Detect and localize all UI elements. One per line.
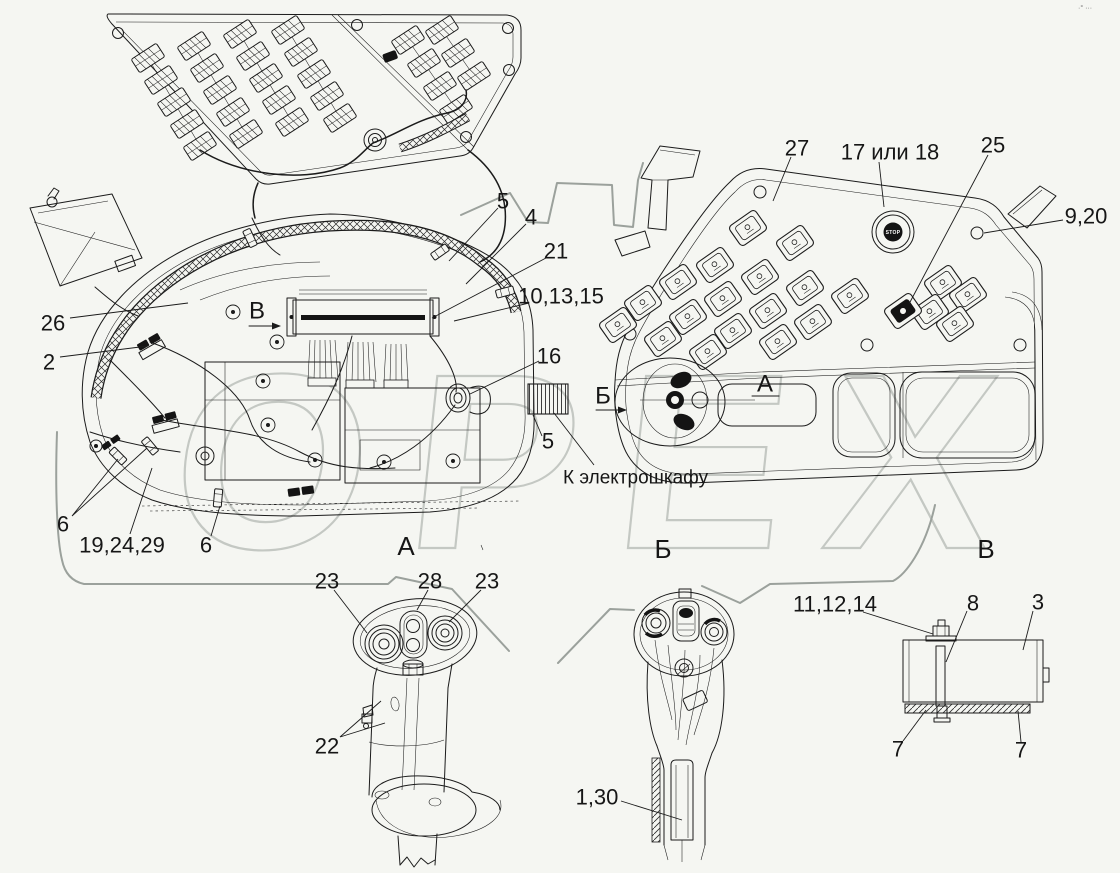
callout-27: 27: [785, 136, 809, 161]
connector-block: [262, 85, 296, 115]
cable-clamp: [430, 244, 449, 261]
joystick-base-flange: [372, 776, 501, 838]
callout-7-right: 7: [1015, 738, 1027, 763]
callout-23-left: 23: [315, 569, 339, 594]
hinge-bracket: [615, 146, 700, 256]
callout-9-20: 9,20: [1065, 204, 1108, 229]
connector-block: [190, 53, 224, 83]
mounting-strip: [905, 704, 1030, 713]
harness-plug-center: [673, 601, 699, 641]
stop-button-label: STOP: [886, 230, 901, 236]
joystick-button-right: [428, 616, 462, 650]
joystick-detail: [349, 593, 501, 867]
connector-block: [177, 31, 211, 61]
corner-flange: [1008, 186, 1056, 228]
connector-block: [441, 38, 475, 68]
annotation-to-cabinet: К электрошкафу: [563, 468, 709, 489]
harness-detail: [634, 589, 734, 862]
cable-clamp: [213, 489, 223, 508]
callout-19-24-29: 19,24,29: [79, 533, 165, 558]
callout-4: 4: [525, 205, 537, 230]
callout-25: 25: [981, 133, 1005, 158]
rocker-switch: [740, 258, 780, 296]
harness-connector-1-30: [671, 760, 693, 840]
connector-block: [216, 97, 250, 127]
callout-21: 21: [544, 239, 568, 264]
small-plug: [382, 50, 398, 63]
callout-11-12-14: 11,12,14: [793, 592, 877, 617]
connector-block: [271, 15, 305, 45]
harness-ring-right: [701, 619, 727, 645]
connector-block: [249, 63, 283, 93]
screw-symbol: [226, 305, 240, 319]
corrugated-cable-stub: [528, 384, 568, 414]
direction-b-letter: Б: [595, 383, 611, 410]
callout-1-30: 1,30: [576, 785, 619, 810]
wiring-diagram: ОРЕХ ·° ···: [0, 0, 1120, 873]
corner-mark: ·° ···: [1078, 4, 1092, 12]
rocker-switch: [728, 209, 768, 247]
view-caption-b: Б: [654, 534, 671, 564]
callout-16: 16: [537, 344, 561, 369]
callout-2: 2: [43, 350, 55, 375]
cable-clamp: [109, 447, 127, 465]
callout-17-or-18: 17 или 18: [841, 140, 940, 165]
connector-block: [323, 103, 357, 133]
callout-8: 8: [967, 591, 979, 616]
connector-block: [157, 87, 191, 117]
callout-22: 22: [315, 734, 339, 759]
callout-10-13-15: 10,13,15: [518, 284, 604, 309]
callout-6-left: 6: [57, 512, 69, 537]
connector-block: [407, 48, 441, 78]
top-panel-view: [107, 14, 521, 218]
view-caption-v: В: [977, 534, 994, 564]
rocker-switch: [695, 246, 735, 284]
technical-drawing-page: ОРЕХ ·° ···: [0, 0, 1120, 873]
connector-block: [310, 81, 344, 111]
relay-box-26: [30, 188, 142, 316]
connector-block: [391, 25, 425, 55]
view-caption-a: А: [397, 531, 415, 561]
callout-7-left: 7: [892, 737, 904, 762]
connector-block: [284, 37, 318, 67]
round-connector: [364, 129, 386, 151]
rocker-switch: [785, 269, 825, 307]
connector-block: [223, 19, 257, 49]
stop-button: STOP: [872, 211, 914, 253]
callout-28: 28: [418, 569, 442, 594]
rocker-switch: [775, 224, 815, 262]
connector-block: [425, 15, 459, 45]
connector-block: [236, 41, 270, 71]
connector-block: [275, 107, 309, 137]
rocker-switch: [703, 280, 743, 318]
callout-5-mid: 5: [542, 429, 554, 454]
connector-blocks: [131, 15, 491, 161]
connector-block: [203, 75, 237, 105]
callout-5-top: 5: [497, 189, 509, 214]
joystick-button-left: [365, 625, 403, 663]
rocker-switch: [830, 277, 870, 315]
joystick-rocker-center: [400, 611, 427, 658]
direction-v-letter: В: [249, 298, 265, 325]
callout-3: 3: [1032, 590, 1044, 615]
watermark-text: ОРЕХ: [160, 323, 1052, 602]
callout-26: 26: [41, 311, 65, 336]
connector-block: [423, 71, 457, 101]
callout-6-bottom: 6: [200, 533, 212, 558]
position-a-letter: А: [757, 371, 773, 398]
harness-ring-left: [642, 609, 670, 637]
connector-block: [457, 61, 491, 91]
connector-block: [297, 59, 331, 89]
connector-block: [170, 109, 204, 139]
callout-23-right: 23: [475, 569, 499, 594]
